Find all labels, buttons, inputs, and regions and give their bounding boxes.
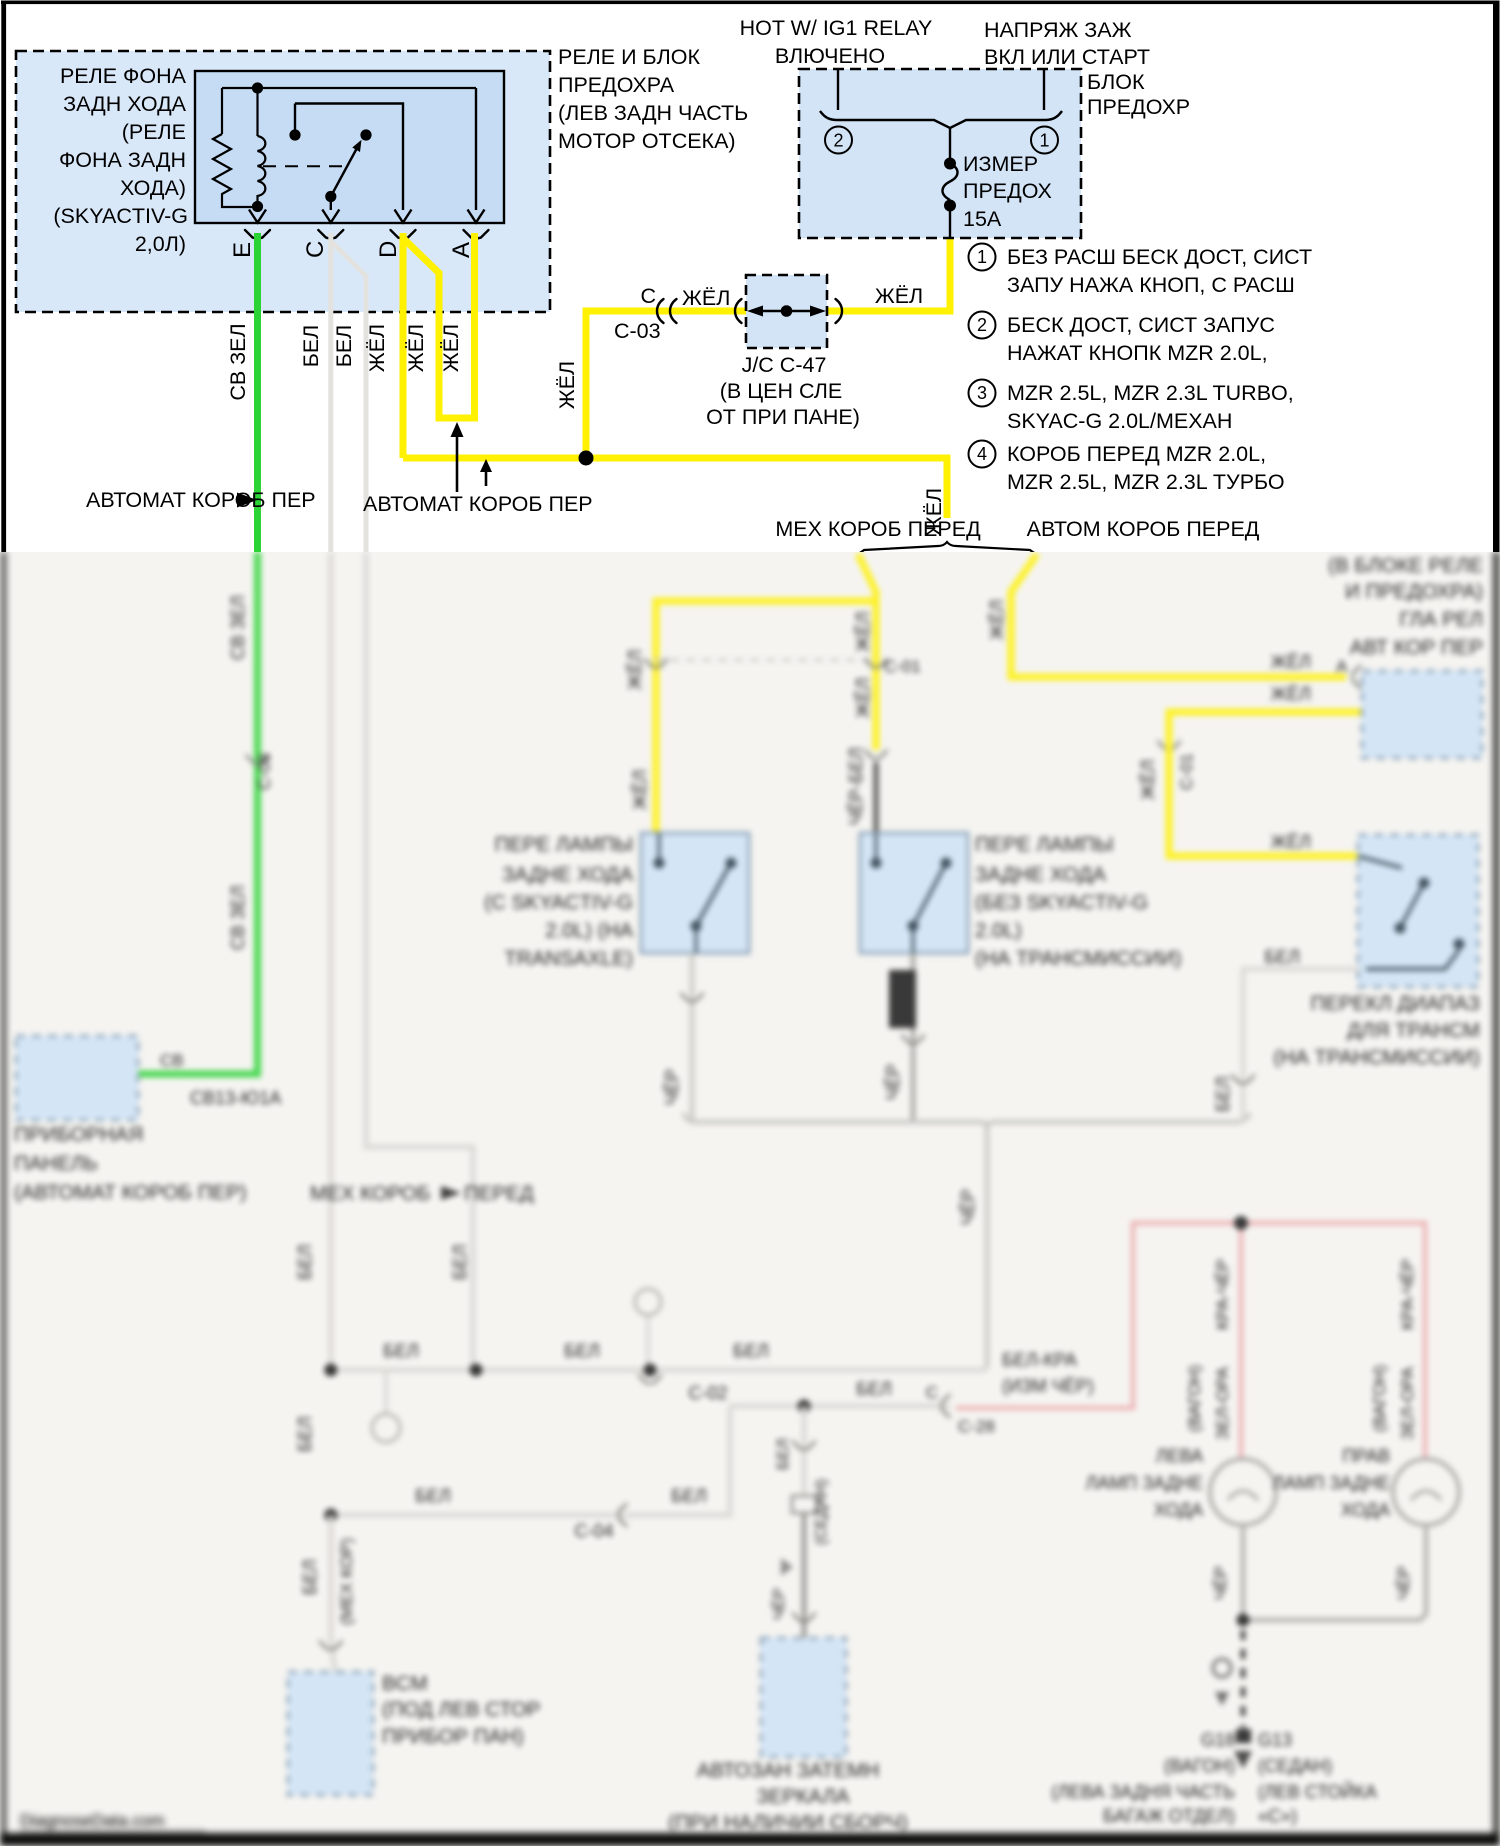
svg-text:БЕСК ДОСТ, СИСТ ЗАПУС: БЕСК ДОСТ, СИСТ ЗАПУС	[1007, 313, 1275, 337]
svg-text:ВЛЮЧЕНО: ВЛЮЧЕНО	[775, 44, 885, 68]
svg-text:НАЖАТ КНОПК MZR 2.0L,: НАЖАТ КНОПК MZR 2.0L,	[1007, 341, 1268, 365]
svg-text:ХОДА): ХОДА)	[120, 176, 186, 200]
svg-text:15А: 15А	[963, 207, 1002, 231]
svg-text:1: 1	[1039, 131, 1049, 151]
svg-text:БЕЗ РАСШ БЕСК ДОСТ, СИСТ: БЕЗ РАСШ БЕСК ДОСТ, СИСТ	[1007, 245, 1312, 269]
svg-text:МЕХ КОРОБ ПЕРЕД: МЕХ КОРОБ ПЕРЕД	[775, 517, 981, 541]
svg-text:HOT W/ IG1 RELAY: HOT W/ IG1 RELAY	[740, 16, 933, 40]
svg-text:MZR 2.5L, MZR 2.3L ТУРБО: MZR 2.5L, MZR 2.3L ТУРБО	[1007, 470, 1285, 494]
svg-text:ИЗМЕР: ИЗМЕР	[963, 152, 1038, 176]
svg-text:(РЕЛЕ: (РЕЛЕ	[122, 120, 186, 144]
svg-text:C: C	[302, 241, 329, 258]
svg-text:БЕЛ: БЕЛ	[299, 325, 323, 368]
svg-text:ЖЁЛ: ЖЁЛ	[682, 286, 730, 310]
svg-text:С-03: С-03	[614, 319, 661, 343]
svg-text:АВТОМАТ КОРОБ ПЕР: АВТОМАТ КОРОБ ПЕР	[363, 492, 593, 516]
svg-text:РЕЛЕ И БЛОК: РЕЛЕ И БЛОК	[558, 45, 700, 69]
svg-text:A: A	[448, 242, 475, 258]
svg-text:СВ ЗЕЛ: СВ ЗЕЛ	[226, 323, 250, 400]
svg-text:2,0Л): 2,0Л)	[135, 232, 186, 256]
svg-text:КОРОБ ПЕРЕД MZR 2.0L,: КОРОБ ПЕРЕД MZR 2.0L,	[1007, 442, 1266, 466]
svg-text:2: 2	[833, 131, 843, 151]
svg-text:ЗАПУ НАЖА КНОП, С РАСШ: ЗАПУ НАЖА КНОП, С РАСШ	[1007, 273, 1295, 297]
svg-text:ПРЕДОХРА: ПРЕДОХРА	[558, 73, 675, 97]
svg-text:ЖЁЛ: ЖЁЛ	[365, 324, 389, 372]
svg-text:MZR 2.5L, MZR 2.3L TURBO,: MZR 2.5L, MZR 2.3L TURBO,	[1007, 381, 1294, 405]
svg-text:ОТ ПРИ ПАНЕ): ОТ ПРИ ПАНЕ)	[706, 405, 860, 429]
svg-text:ПРЕДОХР: ПРЕДОХР	[1087, 95, 1190, 119]
svg-text:ЖЁЛ: ЖЁЛ	[404, 324, 428, 372]
svg-text:ФОНА ЗАДН: ФОНА ЗАДН	[59, 148, 186, 172]
svg-text:(В ЦЕН СЛЕ: (В ЦЕН СЛЕ	[720, 379, 842, 403]
svg-text:ПРЕДОХ: ПРЕДОХ	[963, 179, 1052, 203]
svg-text:SKYAC-G 2.0L/МЕХАН: SKYAC-G 2.0L/МЕХАН	[1007, 409, 1232, 433]
svg-text:АВТОМ КОРОБ ПЕРЕД: АВТОМ КОРОБ ПЕРЕД	[1027, 517, 1260, 541]
svg-text:(ЛЕВ ЗАДН ЧАСТЬ: (ЛЕВ ЗАДН ЧАСТЬ	[558, 101, 748, 125]
svg-text:4: 4	[977, 444, 987, 464]
svg-text:АВТОМАТ КОРОБ ПЕР: АВТОМАТ КОРОБ ПЕР	[86, 488, 316, 512]
svg-text:J/C C-47: J/C C-47	[742, 353, 827, 377]
svg-text:D: D	[375, 241, 402, 258]
svg-text:E: E	[229, 242, 256, 258]
svg-text:1: 1	[977, 247, 987, 267]
svg-text:ЖЁЛ: ЖЁЛ	[439, 324, 463, 372]
svg-text:БЕЛ: БЕЛ	[332, 325, 356, 368]
svg-text:DiagnoseData.com: DiagnoseData.com	[20, 1811, 165, 1830]
svg-text:С: С	[640, 284, 656, 308]
svg-text:2: 2	[977, 315, 987, 335]
svg-text:ЗАДН ХОДА: ЗАДН ХОДА	[63, 92, 187, 116]
svg-text:БЛОК: БЛОК	[1087, 70, 1145, 94]
svg-text:ЖЁЛ: ЖЁЛ	[555, 361, 579, 409]
svg-text:ЖЁЛ: ЖЁЛ	[875, 284, 923, 308]
svg-text:РЕЛЕ ФОНА: РЕЛЕ ФОНА	[60, 64, 187, 88]
svg-text:НАПРЯЖ ЗАЖ: НАПРЯЖ ЗАЖ	[984, 18, 1132, 42]
svg-text:ВКЛ ИЛИ СТАРТ: ВКЛ ИЛИ СТАРТ	[984, 45, 1150, 69]
svg-text:(SKYACTIV-G: (SKYACTIV-G	[53, 204, 188, 228]
svg-text:3: 3	[977, 383, 987, 403]
svg-text:МОТОР ОТСЕКА): МОТОР ОТСЕКА)	[558, 129, 736, 153]
